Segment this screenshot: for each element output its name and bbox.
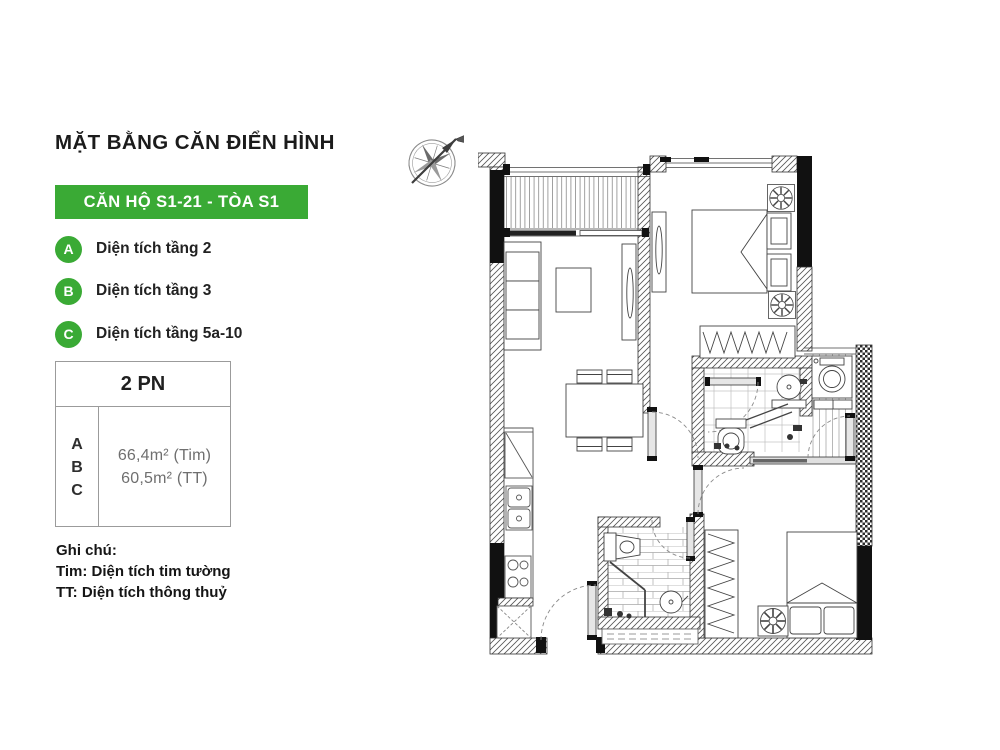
dining-table xyxy=(566,384,643,437)
unit-spec-table: 2 PN A B C 66,4m² (Tim) 60,5m² (TT) xyxy=(55,361,231,527)
notes-heading: Ghi chú: xyxy=(56,540,231,561)
coffee-table xyxy=(556,268,591,312)
legend-label-c: Diện tích tầng 5a-10 xyxy=(96,325,242,343)
entry-mat xyxy=(602,629,698,644)
bed-1 xyxy=(692,210,767,293)
balcony-floor xyxy=(505,177,649,228)
legend-marker-b: B xyxy=(55,278,82,305)
toilet-2 xyxy=(604,533,616,561)
toilet-1 xyxy=(716,419,746,428)
unit-keys: A B C xyxy=(56,407,99,527)
dining-area xyxy=(566,370,643,451)
bedroom-2 xyxy=(705,443,857,638)
pillow xyxy=(824,607,854,634)
unit-key-b: B xyxy=(71,456,83,479)
legend-item-a: A Diện tích tầng 2 xyxy=(55,235,211,263)
tv-living xyxy=(627,268,633,318)
area-tt: 60,5m² (TT) xyxy=(121,467,208,490)
wardrobe-1 xyxy=(700,326,795,358)
legend-label-b: Diện tích tầng 3 xyxy=(96,282,211,300)
legend-item-b: B Diện tích tầng 3 xyxy=(55,277,211,305)
page: MẶT BẰNG CĂN ĐIỂN HÌNH CĂN HỘ S1-21 - TÒ… xyxy=(0,0,1000,750)
unit-key-c: C xyxy=(71,479,83,502)
area-tim: 66,4m² (Tim) xyxy=(118,444,211,467)
tv-bedroom1 xyxy=(656,226,662,274)
notes-line-tt: TT: Diện tích thông thuỷ xyxy=(56,582,231,603)
legend-marker-a: A xyxy=(55,236,82,263)
notes-line-tim: Tim: Diện tích tim tường xyxy=(56,561,231,582)
pillow xyxy=(790,607,821,634)
unit-banner: CĂN HỘ S1-21 - TÒA S1 xyxy=(55,185,308,219)
notes-block: Ghi chú: Tim: Diện tích tim tường TT: Di… xyxy=(56,540,231,603)
wardrobe-2 xyxy=(705,530,738,638)
legend-item-c: C Diện tích tầng 5a-10 xyxy=(55,320,242,348)
legend-marker-c: C xyxy=(55,321,82,348)
bedroom-1 xyxy=(692,185,796,359)
bedroom-count: 2 PN xyxy=(56,362,230,407)
compass-icon xyxy=(400,131,464,195)
unit-areas: 66,4m² (Tim) 60,5m² (TT) xyxy=(99,407,230,527)
floorplan xyxy=(478,148,876,658)
laundry xyxy=(812,356,852,409)
page-title: MẶT BẰNG CĂN ĐIỂN HÌNH xyxy=(55,131,335,155)
unit-key-a: A xyxy=(71,433,83,456)
legend-label-a: Diện tích tầng 2 xyxy=(96,240,211,258)
